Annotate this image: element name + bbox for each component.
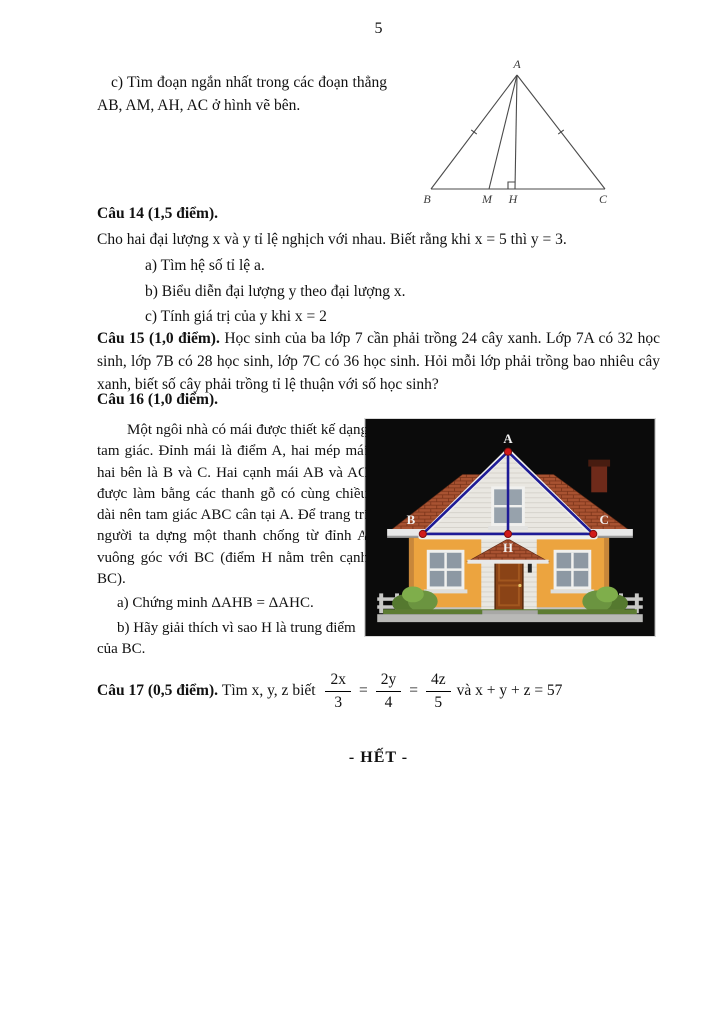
cau14-item-c: c) Tính giá trị của y khi x = 2: [97, 304, 660, 330]
cau17-heading: Câu 17 (0,5 điểm).: [97, 682, 222, 700]
window-right: [551, 550, 595, 594]
question-13c-text: c) Tìm đoạn ngắn nhất trong các đoạn thẳ…: [97, 71, 387, 117]
equals-sign: =: [409, 682, 418, 700]
cau14-item-a: a) Tìm hệ số tỉ lệ a.: [97, 253, 660, 279]
porch-lamp: [528, 564, 532, 573]
fraction-numerator: 2x: [325, 670, 351, 692]
cau16-heading: Câu 16 (1,0 điểm).: [97, 391, 218, 409]
cau17-suffix: và x + y + z = 57: [457, 682, 563, 700]
triangle-segment-ah: [515, 75, 517, 189]
vertex-dot-c: [590, 530, 597, 537]
cau14-heading: Câu 14 (1,5 điểm).: [97, 201, 660, 227]
fraction-4z-5: 4z 5: [426, 670, 451, 713]
house-figure: A B C H: [364, 418, 656, 637]
vertex-dot-a: [504, 448, 511, 455]
house-label-c: C: [599, 513, 608, 527]
fraction-denominator: 3: [334, 692, 342, 713]
triangle-figure-svg: A B M H C: [413, 55, 645, 207]
house-label-b: B: [407, 513, 416, 527]
fraction-denominator: 4: [385, 692, 393, 713]
triangle-segment-am: [489, 75, 517, 189]
chimney: [588, 460, 610, 493]
page-number: 5: [97, 20, 660, 38]
house-label-a: A: [503, 432, 513, 446]
triangle-figure: A B M H C: [413, 55, 645, 212]
fraction-2y-4: 2y 4: [376, 670, 402, 713]
fraction-numerator: 4z: [426, 670, 451, 692]
cau15-heading: Câu 15 (1,0 điểm).: [97, 330, 220, 347]
cau15-paragraph: Câu 15 (1,0 điểm). Học sinh của ba lớp 7…: [97, 327, 660, 397]
equals-sign: =: [359, 682, 368, 700]
cau14-intro: Cho hai đại lượng x và y tỉ lệ nghịch vớ…: [97, 227, 660, 253]
front-door: [495, 557, 523, 611]
vertex-label-a: A: [512, 57, 521, 71]
cau16-paragraph: Một ngôi nhà có mái được thiết kế dạng t…: [97, 420, 368, 590]
fraction-2x-3: 2x 3: [325, 670, 351, 713]
cau16-item-b: b) Hãy giải thích vì sao H là trung điểm…: [97, 618, 368, 661]
cau16-text-column: Một ngôi nhà có mái được thiết kế dạng t…: [97, 420, 368, 660]
tick-mark-ab: [471, 130, 477, 134]
right-angle-mark: [508, 182, 515, 189]
fraction-numerator: 2y: [376, 670, 402, 692]
cau14-item-b: b) Biểu diễn đại lượng y theo đại lượng …: [97, 279, 660, 305]
vertex-dot-b: [419, 530, 426, 537]
cau17-prefix: Tìm x, y, z biết: [222, 682, 320, 700]
cau14-section: Câu 14 (1,5 điểm). Cho hai đại lượng x v…: [97, 201, 660, 330]
end-marker: - HẾT -: [97, 749, 660, 767]
walkway: [377, 614, 643, 622]
cau17-line: Câu 17 (0,5 điểm). Tìm x, y, z biết 2x 3…: [97, 666, 660, 716]
house-figure-svg: A B C H: [364, 418, 656, 637]
vertex-dot-h: [504, 530, 511, 537]
house-label-h: H: [503, 541, 513, 555]
tick-mark-ac: [558, 130, 564, 134]
cau16-item-a: a) Chứng minh ΔAHB = ΔAHC.: [97, 593, 368, 614]
fraction-denominator: 5: [434, 692, 442, 713]
window-left: [424, 550, 468, 594]
